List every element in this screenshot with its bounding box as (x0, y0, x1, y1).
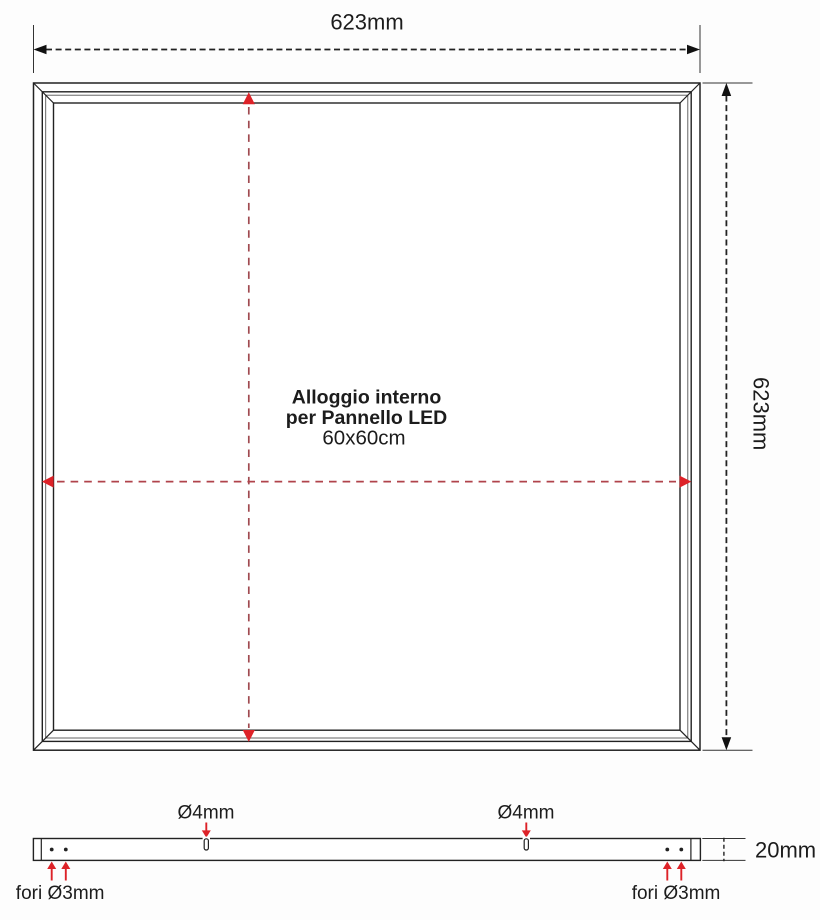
svg-text:20mm: 20mm (755, 838, 816, 863)
svg-text:623mm: 623mm (748, 377, 773, 450)
svg-text:fori Ø3mm: fori Ø3mm (632, 883, 721, 904)
svg-text:Ø4mm: Ø4mm (498, 803, 555, 824)
svg-text:Ø4mm: Ø4mm (178, 803, 235, 824)
svg-text:Alloggio interno: Alloggio interno (292, 387, 442, 409)
svg-text:60x60cm: 60x60cm (322, 427, 405, 450)
svg-text:623mm: 623mm (330, 10, 403, 35)
svg-text:fori Ø3mm: fori Ø3mm (16, 883, 105, 904)
